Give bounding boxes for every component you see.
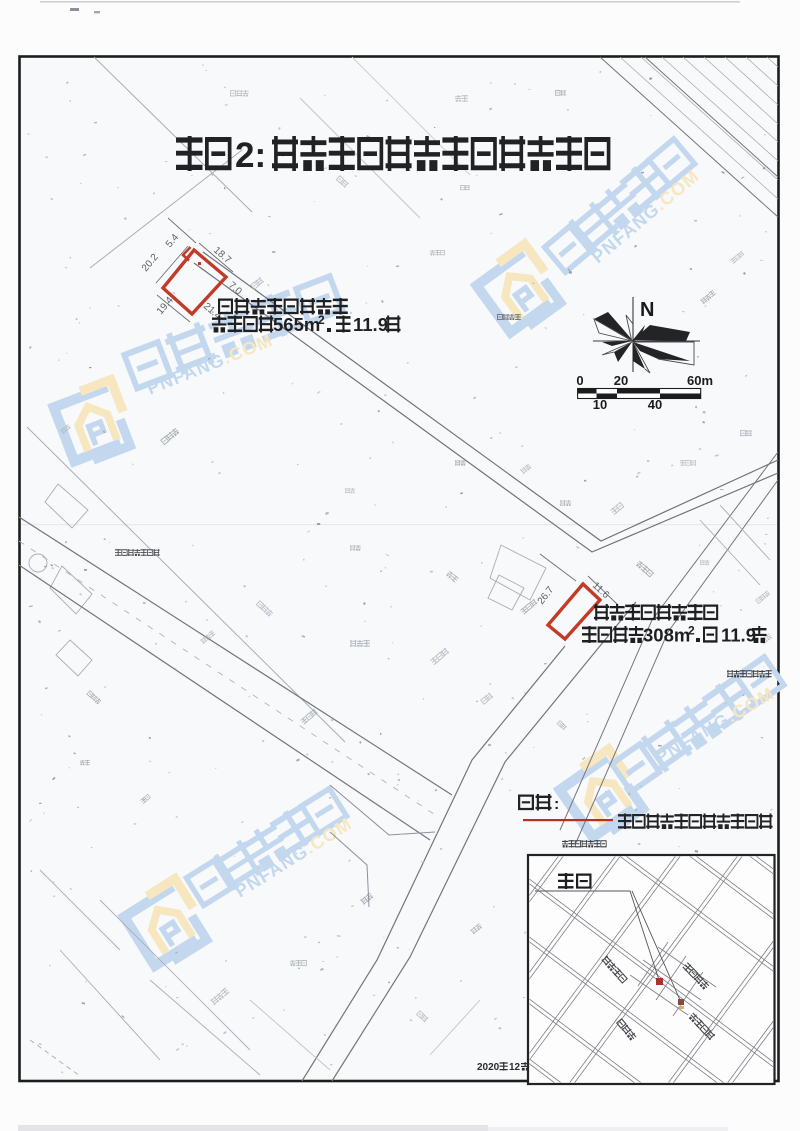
svg-text:2: 2 — [318, 313, 325, 327]
svg-text:N: N — [640, 299, 654, 321]
svg-text:2: 2 — [688, 624, 695, 638]
svg-text:0: 0 — [576, 373, 583, 388]
svg-text:60m: 60m — [687, 373, 713, 388]
svg-text:20: 20 — [614, 373, 628, 388]
svg-text:11.9: 11.9 — [721, 625, 756, 646]
svg-text:565m: 565m — [273, 314, 320, 335]
svg-text:40: 40 — [648, 397, 662, 412]
svg-text:11.9: 11.9 — [353, 314, 388, 335]
svg-text:2:: 2: — [235, 136, 266, 175]
svg-text:308m: 308m — [643, 625, 690, 646]
svg-text:2020: 2020 — [477, 1062, 500, 1073]
svg-text::: : — [554, 796, 559, 813]
svg-text:10: 10 — [593, 397, 607, 412]
svg-text:12: 12 — [509, 1062, 521, 1073]
